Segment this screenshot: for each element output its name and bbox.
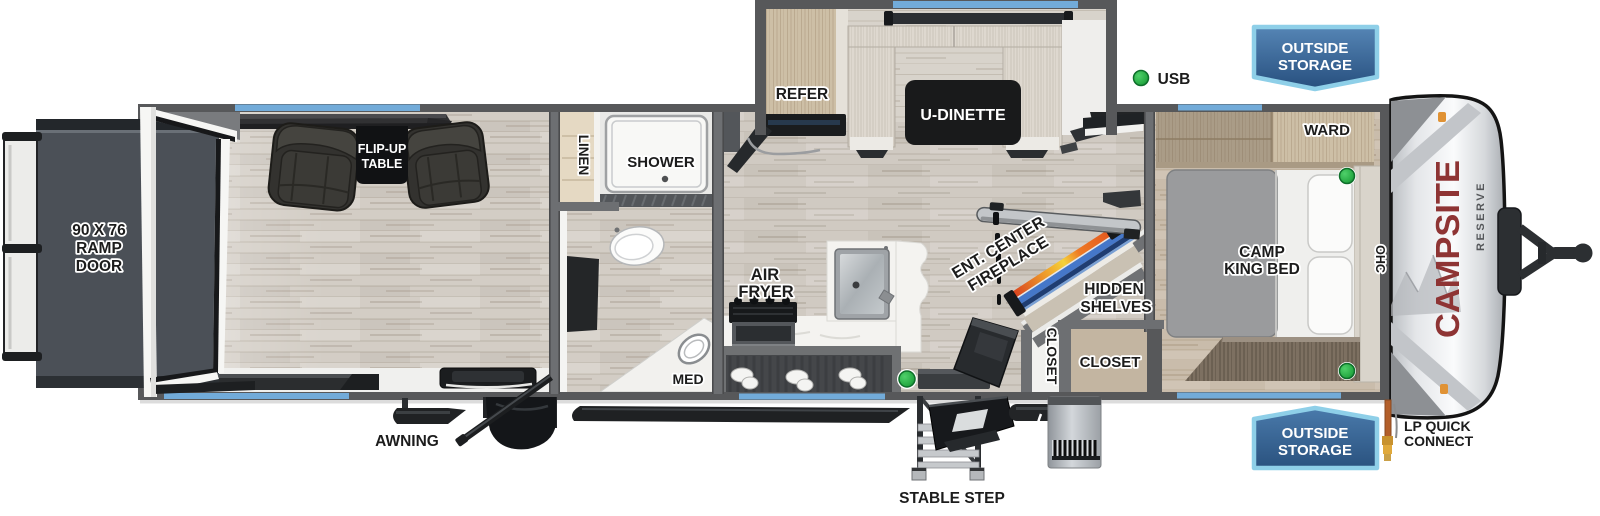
svg-text:STORAGE: STORAGE bbox=[1278, 57, 1352, 74]
svg-text:AIR: AIR bbox=[751, 266, 780, 284]
svg-text:SHOWER: SHOWER bbox=[627, 154, 695, 171]
svg-text:RESERVE: RESERVE bbox=[1475, 181, 1487, 251]
svg-text:CAMP: CAMP bbox=[1239, 244, 1285, 261]
svg-text:REFER: REFER bbox=[776, 86, 829, 103]
svg-text:CONNECT: CONNECT bbox=[1404, 433, 1474, 449]
svg-text:CAMPSITE: CAMPSITE bbox=[1429, 160, 1466, 338]
svg-text:CLOSET: CLOSET bbox=[1044, 328, 1060, 385]
svg-text:OHC: OHC bbox=[1373, 245, 1387, 273]
svg-text:OUTSIDE: OUTSIDE bbox=[1282, 425, 1349, 442]
svg-text:CLOSET: CLOSET bbox=[1080, 354, 1141, 371]
svg-text:LP QUICK: LP QUICK bbox=[1404, 418, 1471, 434]
svg-text:WARD: WARD bbox=[1304, 122, 1350, 139]
svg-text:AWNING: AWNING bbox=[375, 433, 439, 450]
svg-text:USB: USB bbox=[1158, 71, 1191, 88]
svg-text:U-DINETTE: U-DINETTE bbox=[920, 107, 1006, 124]
svg-text:TABLE: TABLE bbox=[362, 157, 403, 171]
svg-text:OUTSIDE: OUTSIDE bbox=[1282, 40, 1349, 57]
svg-text:STABLE STEP: STABLE STEP bbox=[899, 490, 1005, 507]
svg-text:DOOR: DOOR bbox=[76, 258, 123, 275]
svg-text:RAMP: RAMP bbox=[76, 240, 122, 257]
svg-text:LINEN: LINEN bbox=[576, 135, 591, 176]
svg-text:FLIP-UP: FLIP-UP bbox=[358, 142, 407, 156]
svg-text:FRYER: FRYER bbox=[738, 283, 793, 301]
svg-text:KING BED: KING BED bbox=[1224, 261, 1300, 278]
svg-text:STORAGE: STORAGE bbox=[1278, 442, 1352, 459]
svg-text:MED: MED bbox=[672, 371, 703, 387]
svg-text:SHELVES: SHELVES bbox=[1080, 299, 1151, 316]
svg-text:HIDDEN: HIDDEN bbox=[1084, 281, 1143, 298]
svg-text:90 X 76: 90 X 76 bbox=[72, 222, 126, 239]
